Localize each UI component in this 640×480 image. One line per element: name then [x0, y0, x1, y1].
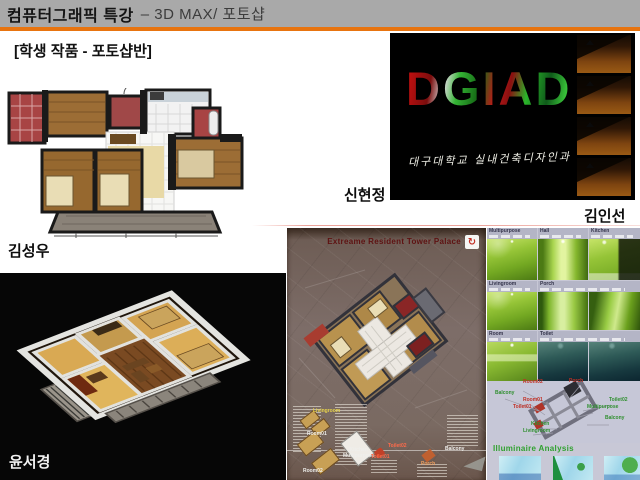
slide-subtitle: [학생 작품 - 포토샵반]: [14, 40, 152, 61]
diagram-label: Porch: [569, 379, 583, 384]
diagram-label: Multipurpose: [587, 405, 618, 410]
render-multipurpose: [487, 239, 537, 280]
poster-label-toilet01: Toilet01: [371, 454, 390, 460]
poster-caption-block: [447, 415, 478, 448]
render-porch: [538, 292, 588, 330]
diagram-label: Room02: [523, 380, 543, 385]
isometric-3d-image: [0, 273, 286, 480]
artwork-poster[interactable]: Extreame Resident Tower Palace ↻: [287, 228, 486, 480]
render-toilet-2: [589, 342, 640, 381]
render-kitchen: [589, 239, 640, 280]
accent-rule: [0, 27, 640, 31]
artwork-dgiad[interactable]: DGIAD 대구대학교 실내건축디자인과: [390, 33, 635, 200]
diagram-label: Kitchen: [531, 422, 549, 427]
dgiad-wordmark: DGIAD: [406, 61, 572, 116]
diagram-label: Livingroom: [523, 429, 550, 434]
filmstrip-frame: [577, 76, 631, 114]
filmstrip-frame: [577, 117, 631, 155]
poster-title: Extreame Resident Tower Palace: [327, 237, 461, 246]
render-toilet-1: [538, 342, 588, 381]
artwork-floorplan-2d[interactable]: [6, 88, 250, 238]
floorplan-2d-image: [6, 88, 250, 238]
filmstrip-graphic: [575, 33, 633, 200]
diagram-label: Balcony: [495, 391, 514, 396]
analysis-thumb-1: [499, 456, 541, 480]
illuminaire-analysis-title: Illuminaire Analysis: [493, 444, 574, 453]
poster-label-toilet02: Toilet02: [388, 443, 407, 449]
credit-kim-in-sun: 김인선: [584, 205, 625, 226]
gallery-header-hall: Hall: [538, 228, 588, 239]
diagram-label: Balcony: [605, 416, 624, 421]
poster-label-kitchen: KitchenMultipurpose: [343, 447, 374, 459]
filmstrip-frame: [577, 35, 631, 73]
render-porch-2: [589, 292, 640, 330]
gallery-header-porch: Porch: [538, 281, 640, 292]
analysis-thumb-2: [553, 456, 593, 480]
poster-caption-block: [371, 460, 397, 474]
diagram-label: Toilet01: [513, 405, 532, 410]
slide-title-rest: – 3D MAX/ 포토샵: [141, 3, 266, 24]
filmstrip-frame: [577, 158, 631, 196]
slide-title-strong: 컴퓨터그래픽 특강: [7, 2, 134, 26]
poster-label-porch: Porch: [421, 461, 435, 467]
diagram-label: Room01: [523, 398, 543, 403]
diagram-label: Toilet02: [609, 398, 628, 403]
poster-logo-icon: ↻: [465, 235, 479, 249]
presentation-slide: 컴퓨터그래픽 특강 – 3D MAX/ 포토샵 [학생 작품 - 포토샵반]: [0, 0, 640, 480]
poster-floorplan-image: [295, 268, 471, 414]
gallery-header-livingroom: Livingroom: [487, 281, 537, 292]
credit-shin-hyun-jung: 신현정: [344, 184, 385, 205]
credit-kim-sung-woo: 김성우: [8, 240, 49, 261]
divider-line: [252, 225, 640, 226]
poster-label-room02: Room02: [303, 468, 323, 474]
slide-title-bar: 컴퓨터그래픽 특강 – 3D MAX/ 포토샵: [0, 0, 640, 27]
poster-label-livingroom: Livingroom: [313, 408, 340, 414]
artwork-isometric-3d[interactable]: 윤서경: [0, 273, 286, 480]
gallery-header-kitchen: Kitchen: [589, 228, 640, 239]
gallery-header-multipurpose: Multipurpose: [487, 228, 537, 239]
poster-label-balcony: Balcony: [445, 446, 464, 452]
gallery-header-toilet: Toilet: [538, 331, 640, 342]
credit-yoon-seo-kyung: 윤서경: [9, 451, 50, 472]
dgiad-caption: 대구대학교 실내건축디자인과: [408, 148, 572, 170]
artwork-render-gallery[interactable]: Multipurpose Hall Kitchen Livingroom Por…: [487, 228, 640, 480]
poster-label-room01: Room01: [307, 431, 327, 437]
render-room: [487, 342, 537, 381]
analysis-thumb-3: [604, 456, 640, 480]
render-hall: [538, 239, 588, 280]
render-livingroom: [487, 292, 537, 330]
gallery-header-room: Room: [487, 331, 537, 342]
axonometric-diagram: Room02 Porch Balcony Room01 Toilet01 Toi…: [487, 381, 640, 443]
